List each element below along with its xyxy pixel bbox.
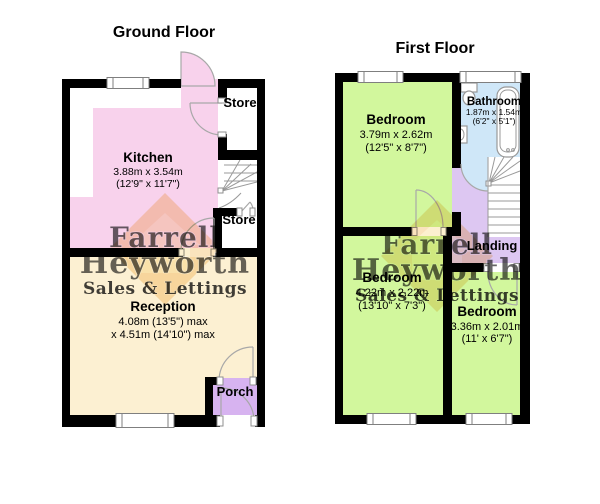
brand-tagline: Sales & Lettings [355,286,519,306]
brand-tagline: Sales & Lettings [83,279,247,299]
bedroom1-dim-imperial: (12'5" x 8'7") [365,142,427,154]
reception-dim-1: 4.08m (13'5") max [118,316,208,328]
kitchen-label: Kitchen [123,150,173,165]
front-door-swing [181,52,215,86]
brand-name-line2: Heyworth [80,246,250,281]
kitchen-dim-metric: 3.88m x 3.54m [113,166,183,178]
ground-floor-title: Ground Floor [113,24,215,41]
first-floor-title: First Floor [395,40,474,57]
bedroom3-label: Bedroom [457,304,516,319]
store-top-label: Store [223,95,256,110]
kitchen-dim-imperial: (12'9" x 11'7") [116,178,180,190]
bathroom-dim-imperial: (6'2" x 5'1") [473,116,516,126]
floorplan-page: Ground Floor Kitchen 3.88m x 3.54m (12'9… [0,0,600,504]
bedroom1-dim-metric: 3.79m x 2.62m [360,129,433,141]
floorplan-drawing: Ground Floor Kitchen 3.88m x 3.54m (12'9… [0,0,600,504]
bedroom1-label: Bedroom [366,112,425,127]
reception-dim-2: x 4.51m (14'10") max [111,329,215,341]
porch-label: Porch [217,384,254,399]
bedroom3-dim-metric: 3.36m x 2.01m [451,321,524,333]
store-bottom-label: Store [222,212,255,227]
bedroom3-dim-imperial: (11' x 6'7") [462,333,513,345]
brand-name-line2: Heyworth [352,253,522,288]
